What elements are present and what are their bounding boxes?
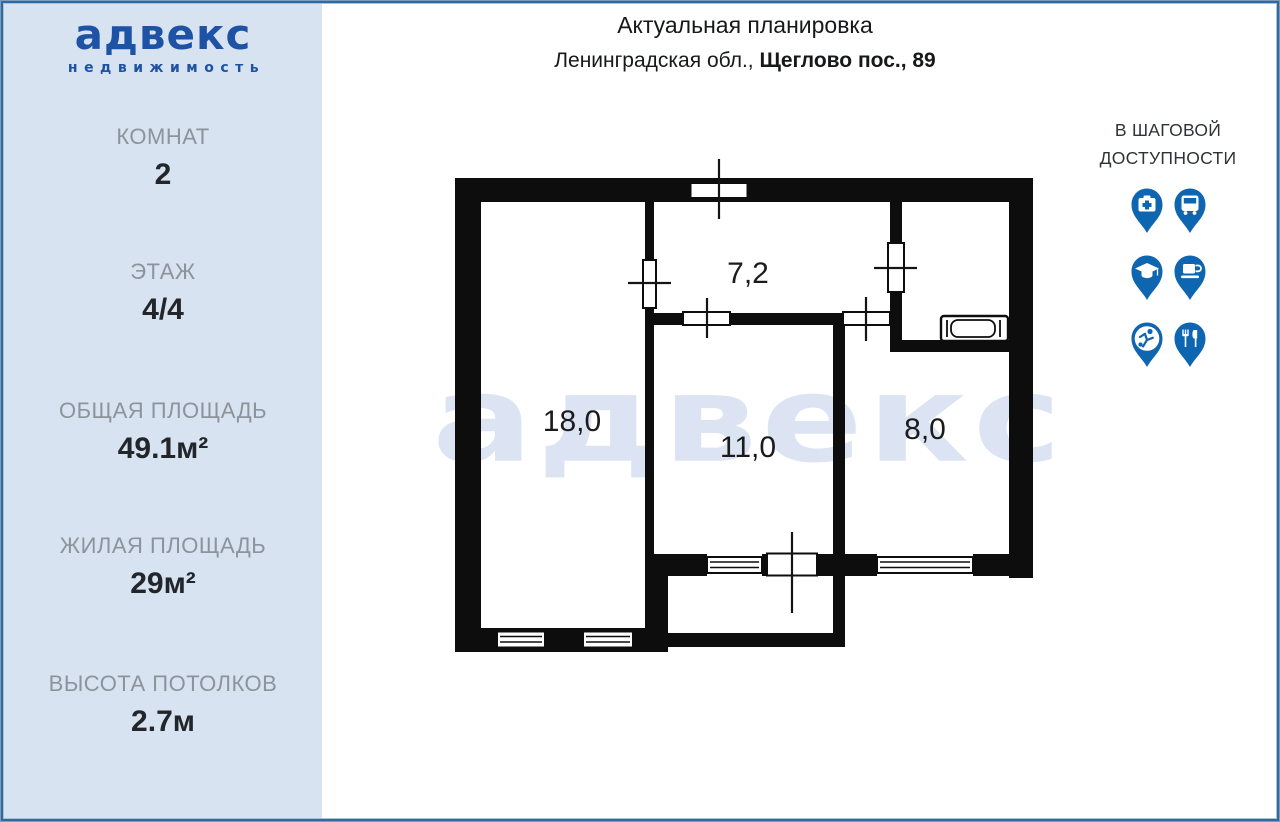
stat-rooms-value: 2 [4,158,322,192]
room-area-label-bedroom: 11,0 [720,431,776,464]
nearby-heading-line2: ДОСТУПНОСТИ [1088,144,1248,172]
wall-kitchen-bottom-a [845,554,877,576]
wall-hallway-bottom-a [654,313,683,325]
agency-logo-brand: адвекс [4,14,322,56]
stat-living-area-value: 29м² [4,567,322,601]
cafe-pin-icon [1171,254,1209,302]
stat-total-area: ОБЩАЯ ПЛОЩАДЬ 49.1м² [4,398,322,466]
wall-balcony-bottom [645,633,845,647]
nearby-pin-grid [1088,187,1248,369]
stat-floor-label: ЭТАЖ [4,259,322,285]
stat-ceiling-height-label: ВЫСОТА ПОТОЛКОВ [4,671,322,697]
wall-partition-kitchen [833,322,845,554]
stat-living-area: ЖИЛАЯ ПЛОЩАДЬ 29м² [4,533,322,601]
agency-logo-tagline: недвижимость [4,60,322,76]
nearby-block: В ШАГОВОЙ ДОСТУПНОСТИ [1088,116,1248,369]
wall-bottom-living [455,628,668,652]
wall-bath-left-top [890,202,902,243]
medicine-pin-icon [1128,187,1166,235]
walls [455,178,1033,652]
wall-kitchen-bottom-b [973,554,1033,576]
window-living-left [497,632,545,648]
wall-outer-right [1009,202,1033,578]
window-living-right [583,632,633,648]
room-area-label-living: 18,0 [543,405,601,438]
stat-ceiling-height: ВЫСОТА ПОТОЛКОВ 2.7м [4,671,322,739]
main-area: Актуальная планировка Ленинградская обл.… [322,4,1276,818]
restaurant-pin-icon [1171,321,1209,369]
education-pin-icon [1128,254,1166,302]
nearby-heading: В ШАГОВОЙ ДОСТУПНОСТИ [1088,116,1248,172]
address-region: Ленинградская обл., [554,49,759,72]
agency-logo: адвекс недвижимость [4,14,322,76]
stat-rooms: КОМНАТ 2 [4,124,322,192]
stat-floor-value: 4/4 [4,293,322,327]
measure-marks [628,159,917,613]
window-kitchen [877,557,973,573]
header-block: Актуальная планировка Ленинградская обл.… [445,12,1045,73]
listing-card: адвекс недвижимость КОМНАТ 2 ЭТАЖ 4/4 ОБ… [0,0,1280,822]
stat-total-area-value: 49.1м² [4,432,322,466]
wall-balcony-right [833,554,845,647]
window-bedroom [707,557,762,573]
bus-pin-icon [1171,187,1209,235]
stat-floor: ЭТАЖ 4/4 [4,259,322,327]
stat-ceiling-height-value: 2.7м [4,705,322,739]
page-title: Актуальная планировка [445,12,1045,39]
wall-hallway-bottom-b [730,313,843,325]
address-line: Ленинградская обл., Щеглово пос., 89 [445,49,1045,73]
nearby-heading-line1: В ШАГОВОЙ [1088,116,1248,144]
room-labels: 7,2 18,0 11,0 8,0 [543,257,946,464]
sport-pin-icon [1128,321,1166,369]
stat-rooms-label: КОМНАТ [4,124,322,150]
wall-partition-living-top [645,202,654,260]
doors [643,243,904,576]
room-area-label-hallway: 7,2 [727,257,769,290]
address-street: Щеглово пос., 89 [759,49,935,72]
floor-plan: 7,2 18,0 11,0 8,0 [440,150,1040,662]
bathtub [941,316,1008,341]
room-area-label-kitchen: 8,0 [904,413,946,446]
stat-total-area-label: ОБЩАЯ ПЛОЩАДЬ [4,398,322,424]
wall-outer-left [455,202,481,652]
stat-living-area-label: ЖИЛАЯ ПЛОЩАДЬ [4,533,322,559]
sidebar: адвекс недвижимость КОМНАТ 2 ЭТАЖ 4/4 ОБ… [4,4,322,818]
